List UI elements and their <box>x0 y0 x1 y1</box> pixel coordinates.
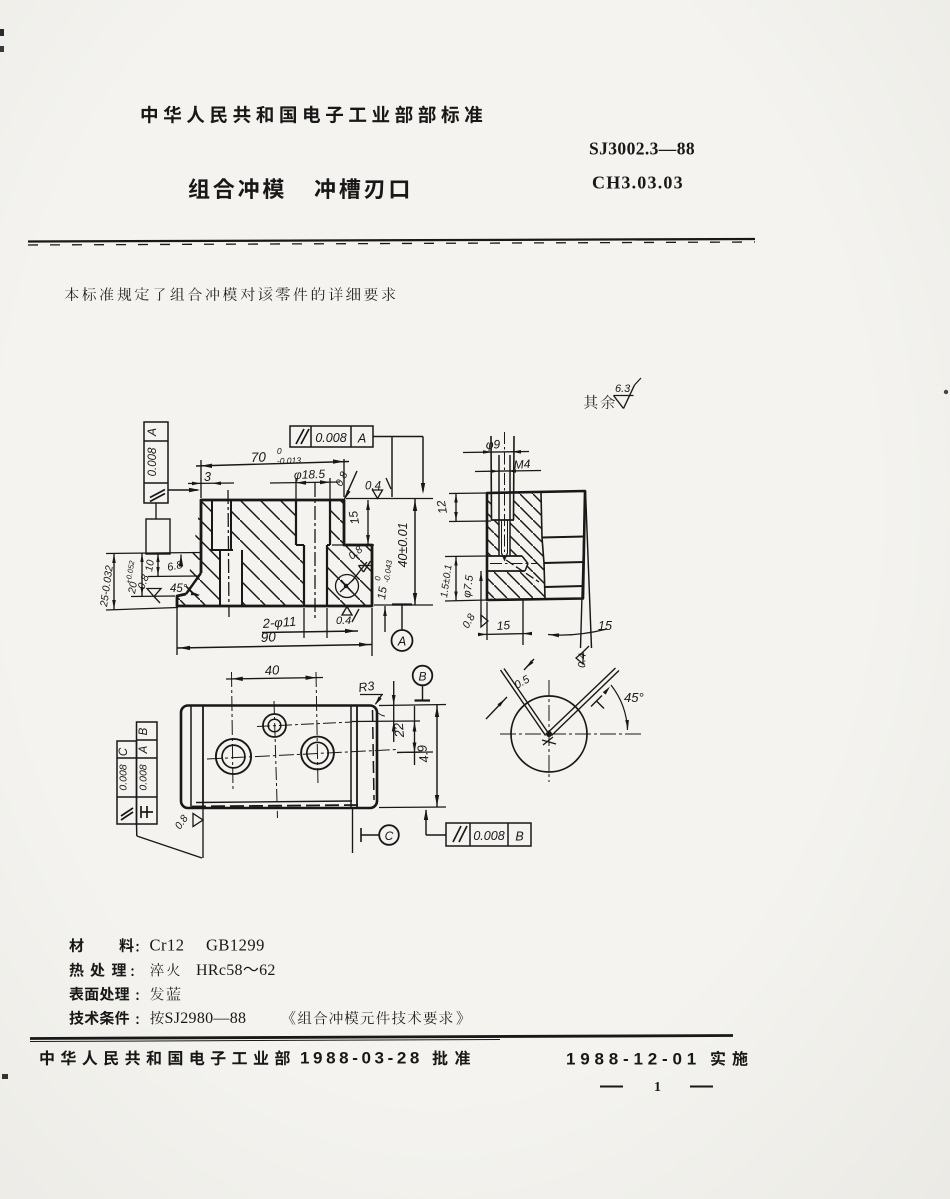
svg-text:0.008: 0.008 <box>315 431 346 445</box>
svg-text:3: 3 <box>204 470 211 484</box>
svg-text:0.8: 0.8 <box>460 612 478 631</box>
svg-text:HRc58～62: HRc58～62 <box>196 962 276 979</box>
svg-text:0.4: 0.4 <box>336 615 351 627</box>
svg-text:-0.043: -0.043 <box>382 559 394 583</box>
svg-text:φ18.5: φ18.5 <box>294 467 326 482</box>
svg-text:0.8: 0.8 <box>173 813 191 832</box>
svg-text:B: B <box>515 830 523 844</box>
svg-text:15: 15 <box>346 510 362 526</box>
svg-text:A: A <box>397 635 406 649</box>
svg-text:-0.013: -0.013 <box>277 455 302 466</box>
svg-text:SJ2980—88: SJ2980—88 <box>165 1010 247 1027</box>
svg-text:1.5±0.1: 1.5±0.1 <box>439 564 455 599</box>
svg-text:A: A <box>357 432 366 446</box>
svg-text:15: 15 <box>598 619 612 633</box>
svg-text:φ7.5: φ7.5 <box>461 574 476 599</box>
svg-text:0.008: 0.008 <box>118 764 130 790</box>
svg-text:45°: 45° <box>624 690 644 705</box>
svg-text:15: 15 <box>496 618 511 633</box>
svg-text:0.008: 0.008 <box>138 764 150 790</box>
svg-text:0.008: 0.008 <box>147 447 159 476</box>
svg-text:0.8: 0.8 <box>333 470 350 488</box>
svg-text:12: 12 <box>434 499 450 515</box>
svg-text:0.5: 0.5 <box>513 673 533 691</box>
svg-text:CH3.03.03: CH3.03.03 <box>592 173 684 193</box>
svg-text:Cr12: Cr12 <box>150 936 185 955</box>
svg-text:0.008: 0.008 <box>473 829 504 843</box>
svg-text:15: 15 <box>376 585 390 600</box>
svg-text:φ9: φ9 <box>485 437 501 452</box>
svg-text:A: A <box>138 745 150 754</box>
svg-text:90: 90 <box>260 629 276 645</box>
svg-text:0: 0 <box>277 446 282 456</box>
svg-text:A: A <box>145 428 159 437</box>
svg-text:40: 40 <box>264 662 280 678</box>
svg-text:B: B <box>418 670 426 684</box>
svg-text:SJ3002.3—88: SJ3002.3—88 <box>589 139 695 159</box>
svg-text:M4: M4 <box>513 457 531 472</box>
svg-text:B: B <box>138 727 150 735</box>
svg-text:22: 22 <box>391 722 407 739</box>
svg-text:6.3: 6.3 <box>615 383 631 395</box>
svg-text:1: 1 <box>654 1080 661 1095</box>
svg-text:10: 10 <box>143 559 157 573</box>
svg-text:45°: 45° <box>170 583 188 595</box>
svg-text:7: 7 <box>373 710 388 719</box>
svg-text:+0.052: +0.052 <box>124 559 137 584</box>
svg-text:R3: R3 <box>357 679 375 695</box>
svg-text:C: C <box>118 747 130 756</box>
svg-text:4.9: 4.9 <box>414 744 432 764</box>
svg-text:0: 0 <box>373 575 383 581</box>
svg-text:70: 70 <box>251 449 267 465</box>
svg-text:1988-12-01: 1988-12-01 <box>566 1050 701 1069</box>
svg-text:1988-03-28: 1988-03-28 <box>300 1049 423 1068</box>
svg-text:C: C <box>385 829 394 843</box>
svg-text:GB1299: GB1299 <box>206 936 265 955</box>
svg-text:2-φ11: 2-φ11 <box>261 614 297 631</box>
svg-text:40±0.01: 40±0.01 <box>396 522 410 567</box>
